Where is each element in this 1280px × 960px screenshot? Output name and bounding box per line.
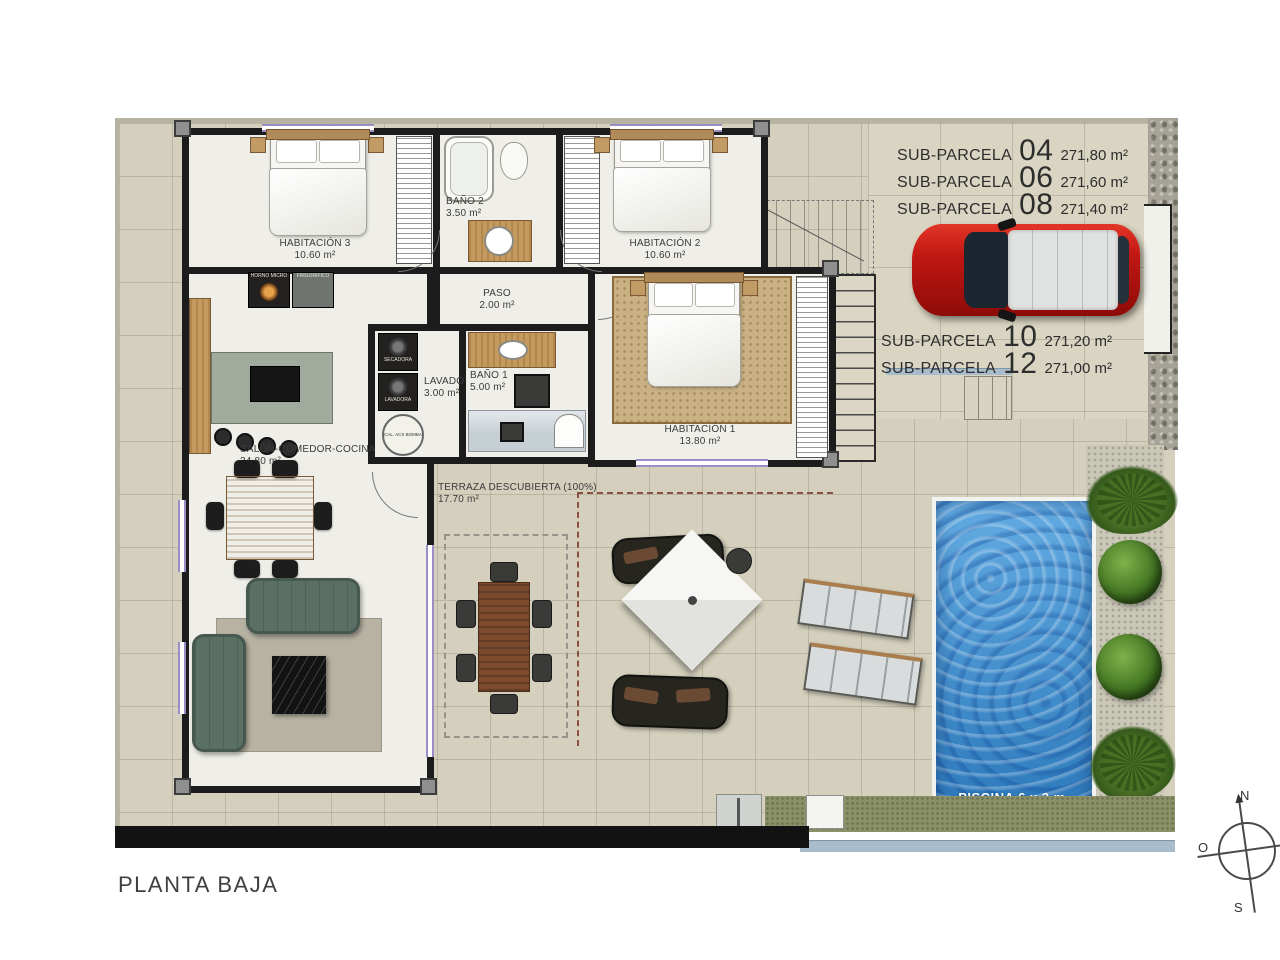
sub-parcela-area: 271,00 m² — [1044, 360, 1112, 377]
terrace-boundary — [577, 492, 579, 746]
room-label-paso: PASO 2.00 m² — [457, 288, 537, 312]
boundary-line — [800, 840, 1175, 852]
arch-detail — [554, 414, 584, 448]
sub-parcela-row: SUB-PARCELA 04 271,80 m² — [880, 138, 1128, 164]
nightstand — [250, 137, 266, 153]
room-name: TERRAZA DESCUBIERTA (100%) — [438, 482, 597, 494]
floor-plan-page: HABITACIÓN 3 10.60 m² BAÑO 2 3.50 m² HAB… — [0, 0, 1280, 960]
cushion — [676, 688, 711, 703]
parasol-pole — [688, 596, 697, 605]
room-area: 10.60 m² — [250, 250, 380, 262]
room-label-salon: SALÓN-COMEDOR-COCINA 34.80 m² — [240, 444, 376, 468]
sub-parcela-label: SUB-PARCELA — [897, 201, 1012, 219]
appliance-label: SECADORA — [384, 357, 412, 363]
room-area: 5.00 m² — [470, 382, 508, 394]
post — [753, 120, 770, 137]
room-label-bano1: BAÑO 1 5.00 m² — [470, 370, 508, 394]
toilet — [500, 142, 528, 180]
post — [822, 260, 839, 277]
room-label-lavado: LAVADO 3.00 m² — [424, 376, 464, 400]
bed-headboard — [610, 129, 714, 140]
sub-parcela-row: SUB-PARCELA 06 271,60 m² — [880, 165, 1128, 191]
wardrobe — [564, 136, 600, 264]
side-table — [726, 548, 752, 574]
nightstand — [368, 137, 384, 153]
dining-chair — [206, 502, 224, 530]
room-name: BAÑO 1 — [470, 370, 508, 382]
duvet — [613, 167, 711, 232]
bed-headboard — [644, 272, 744, 283]
fridge: FRIGORÍFICO — [292, 272, 334, 308]
room-name: HABITACIÓN 3 — [250, 238, 380, 250]
room-name: SALÓN-COMEDOR-COCINA — [240, 444, 376, 456]
shower-pole — [737, 798, 740, 828]
sub-parcela-number: 08 — [1019, 192, 1053, 218]
car — [912, 218, 1140, 322]
duvet — [269, 168, 367, 236]
compass: N O S — [1202, 792, 1280, 922]
bathtub-inner — [450, 142, 488, 196]
outdoor-chair — [532, 600, 552, 628]
room-label-terraza: TERRAZA DESCUBIERTA (100%) 17.70 m² — [438, 482, 597, 506]
boiler: CAL. ACS BOMBA — [382, 414, 424, 456]
room-name: PASO — [457, 288, 537, 300]
cooktop — [250, 366, 300, 402]
compass-west: O — [1198, 840, 1208, 855]
pillow — [620, 140, 661, 162]
sub-parcela-label: SUB-PARCELA — [881, 333, 996, 351]
coffee-table — [272, 656, 326, 714]
kitchen-counter — [189, 298, 211, 454]
wardrobe — [396, 136, 432, 264]
outdoor-sofa — [611, 674, 729, 730]
dining-chair — [314, 502, 332, 530]
car-roof — [1008, 230, 1118, 310]
dryer-drum — [389, 338, 407, 356]
sub-parcela-number: 12 — [1003, 351, 1037, 377]
window — [178, 500, 186, 572]
room-area: 3.50 m² — [446, 208, 484, 220]
car-windshield — [964, 232, 1008, 308]
washer: LAVADORA — [378, 373, 418, 411]
bed — [648, 278, 740, 386]
pillow — [319, 140, 360, 163]
compass-north: N — [1240, 788, 1249, 803]
outdoor-chair — [490, 694, 518, 714]
room-area: 10.60 m² — [600, 250, 730, 262]
room-area: 17.70 m² — [438, 494, 597, 506]
room-area: 3.00 m² — [424, 388, 464, 400]
bed-headboard — [266, 129, 370, 140]
post — [174, 778, 191, 795]
duvet — [647, 314, 741, 387]
sink — [498, 340, 528, 360]
bathtub — [444, 136, 494, 202]
appliance-label: LAVADORA — [385, 397, 412, 403]
bush — [1098, 540, 1162, 604]
pillow — [276, 140, 317, 163]
boundary-wall — [1144, 204, 1172, 354]
outdoor-chair — [456, 654, 476, 682]
compass-needle-ns — [1238, 802, 1256, 913]
pillow — [663, 140, 704, 162]
room-name: BAÑO 2 — [446, 196, 484, 208]
post — [174, 120, 191, 137]
sub-parcela-row: SUB-PARCELA 10 271,20 m² — [880, 324, 1112, 350]
room-name: HABITACIÓN 2 — [600, 238, 730, 250]
sliding-glass-door — [426, 545, 434, 757]
wardrobe — [796, 276, 828, 458]
room-label-habitacion2: HABITACIÓN 2 10.60 m² — [600, 238, 730, 262]
oven-microwave: HORNO MICRO — [248, 272, 290, 308]
entry-steps — [964, 376, 1012, 420]
shower — [514, 374, 550, 408]
room-label-habitacion1: HABITACIÓN 1 13.80 m² — [640, 424, 760, 448]
stairs-cut-line — [767, 209, 865, 262]
terrace-boundary — [577, 492, 833, 494]
outdoor-dining-table — [478, 582, 530, 692]
pillow — [695, 283, 735, 307]
bath-fixture — [500, 422, 524, 442]
cushion — [623, 686, 659, 704]
stool — [214, 428, 232, 446]
outdoor-shower-tray — [806, 795, 844, 829]
room-area: 13.80 m² — [640, 436, 760, 448]
nightstand — [712, 137, 728, 153]
bed — [270, 135, 366, 235]
swimming-pool: PISCINA 6 x 3 m. — [932, 497, 1096, 815]
dining-chair — [272, 560, 298, 578]
appliance-label: FRIGORÍFICO — [297, 273, 330, 279]
sub-parcela-area: 271,20 m² — [1044, 333, 1112, 350]
post — [420, 778, 437, 795]
sub-parcela-row: SUB-PARCELA 12 271,00 m² — [880, 351, 1112, 377]
sub-parcela-label: SUB-PARCELA — [881, 360, 996, 378]
room-label-bano2: BAÑO 2 3.50 m² — [446, 196, 484, 220]
room-label-habitacion3: HABITACIÓN 3 10.60 m² — [250, 238, 380, 262]
sub-parcela-label: SUB-PARCELA — [897, 174, 1012, 192]
outdoor-chair — [532, 654, 552, 682]
dryer: SECADORA — [378, 333, 418, 371]
bed — [614, 135, 710, 231]
room-area: 34.80 m² — [240, 456, 376, 468]
sub-parcela-area: 271,80 m² — [1060, 147, 1128, 164]
stairs-upper-dashed — [762, 200, 874, 274]
dining-chair — [234, 560, 260, 578]
sofa — [192, 634, 246, 752]
nightstand — [594, 137, 610, 153]
room-name: HABITACIÓN 1 — [640, 424, 760, 436]
cushion — [623, 546, 659, 564]
oven-glow — [260, 283, 278, 301]
bush — [1096, 634, 1162, 700]
page-title: PLANTA BAJA — [118, 872, 278, 898]
sub-parcela-list-top: SUB-PARCELA 04 271,80 m² SUB-PARCELA 06 … — [880, 138, 1128, 218]
boiler-label: CAL. ACS BOMBA — [384, 432, 422, 438]
washer-drum — [389, 378, 407, 396]
compass-south: S — [1234, 900, 1243, 915]
outdoor-chair — [456, 600, 476, 628]
sofa — [246, 578, 360, 634]
nightstand — [742, 280, 758, 296]
window — [178, 642, 186, 714]
section-wall — [115, 826, 809, 848]
sub-parcela-label: SUB-PARCELA — [897, 147, 1012, 165]
dining-table — [226, 476, 314, 560]
outdoor-chair — [490, 562, 518, 582]
pillow — [654, 283, 694, 307]
compass-needle-ew — [1197, 843, 1280, 858]
car-rear-window — [1118, 236, 1129, 304]
sub-parcela-area: 271,40 m² — [1060, 201, 1128, 218]
sub-parcela-area: 271,60 m² — [1060, 174, 1128, 191]
sink — [484, 226, 514, 256]
room-area: 2.00 m² — [457, 300, 537, 312]
appliance-label: HORNO MICRO — [251, 273, 288, 279]
room-name: LAVADO — [424, 376, 464, 388]
sub-parcela-row: SUB-PARCELA 08 271,40 m² — [880, 192, 1128, 218]
sub-parcela-list-bottom: SUB-PARCELA 10 271,20 m² SUB-PARCELA 12 … — [880, 324, 1112, 377]
window — [636, 459, 768, 467]
